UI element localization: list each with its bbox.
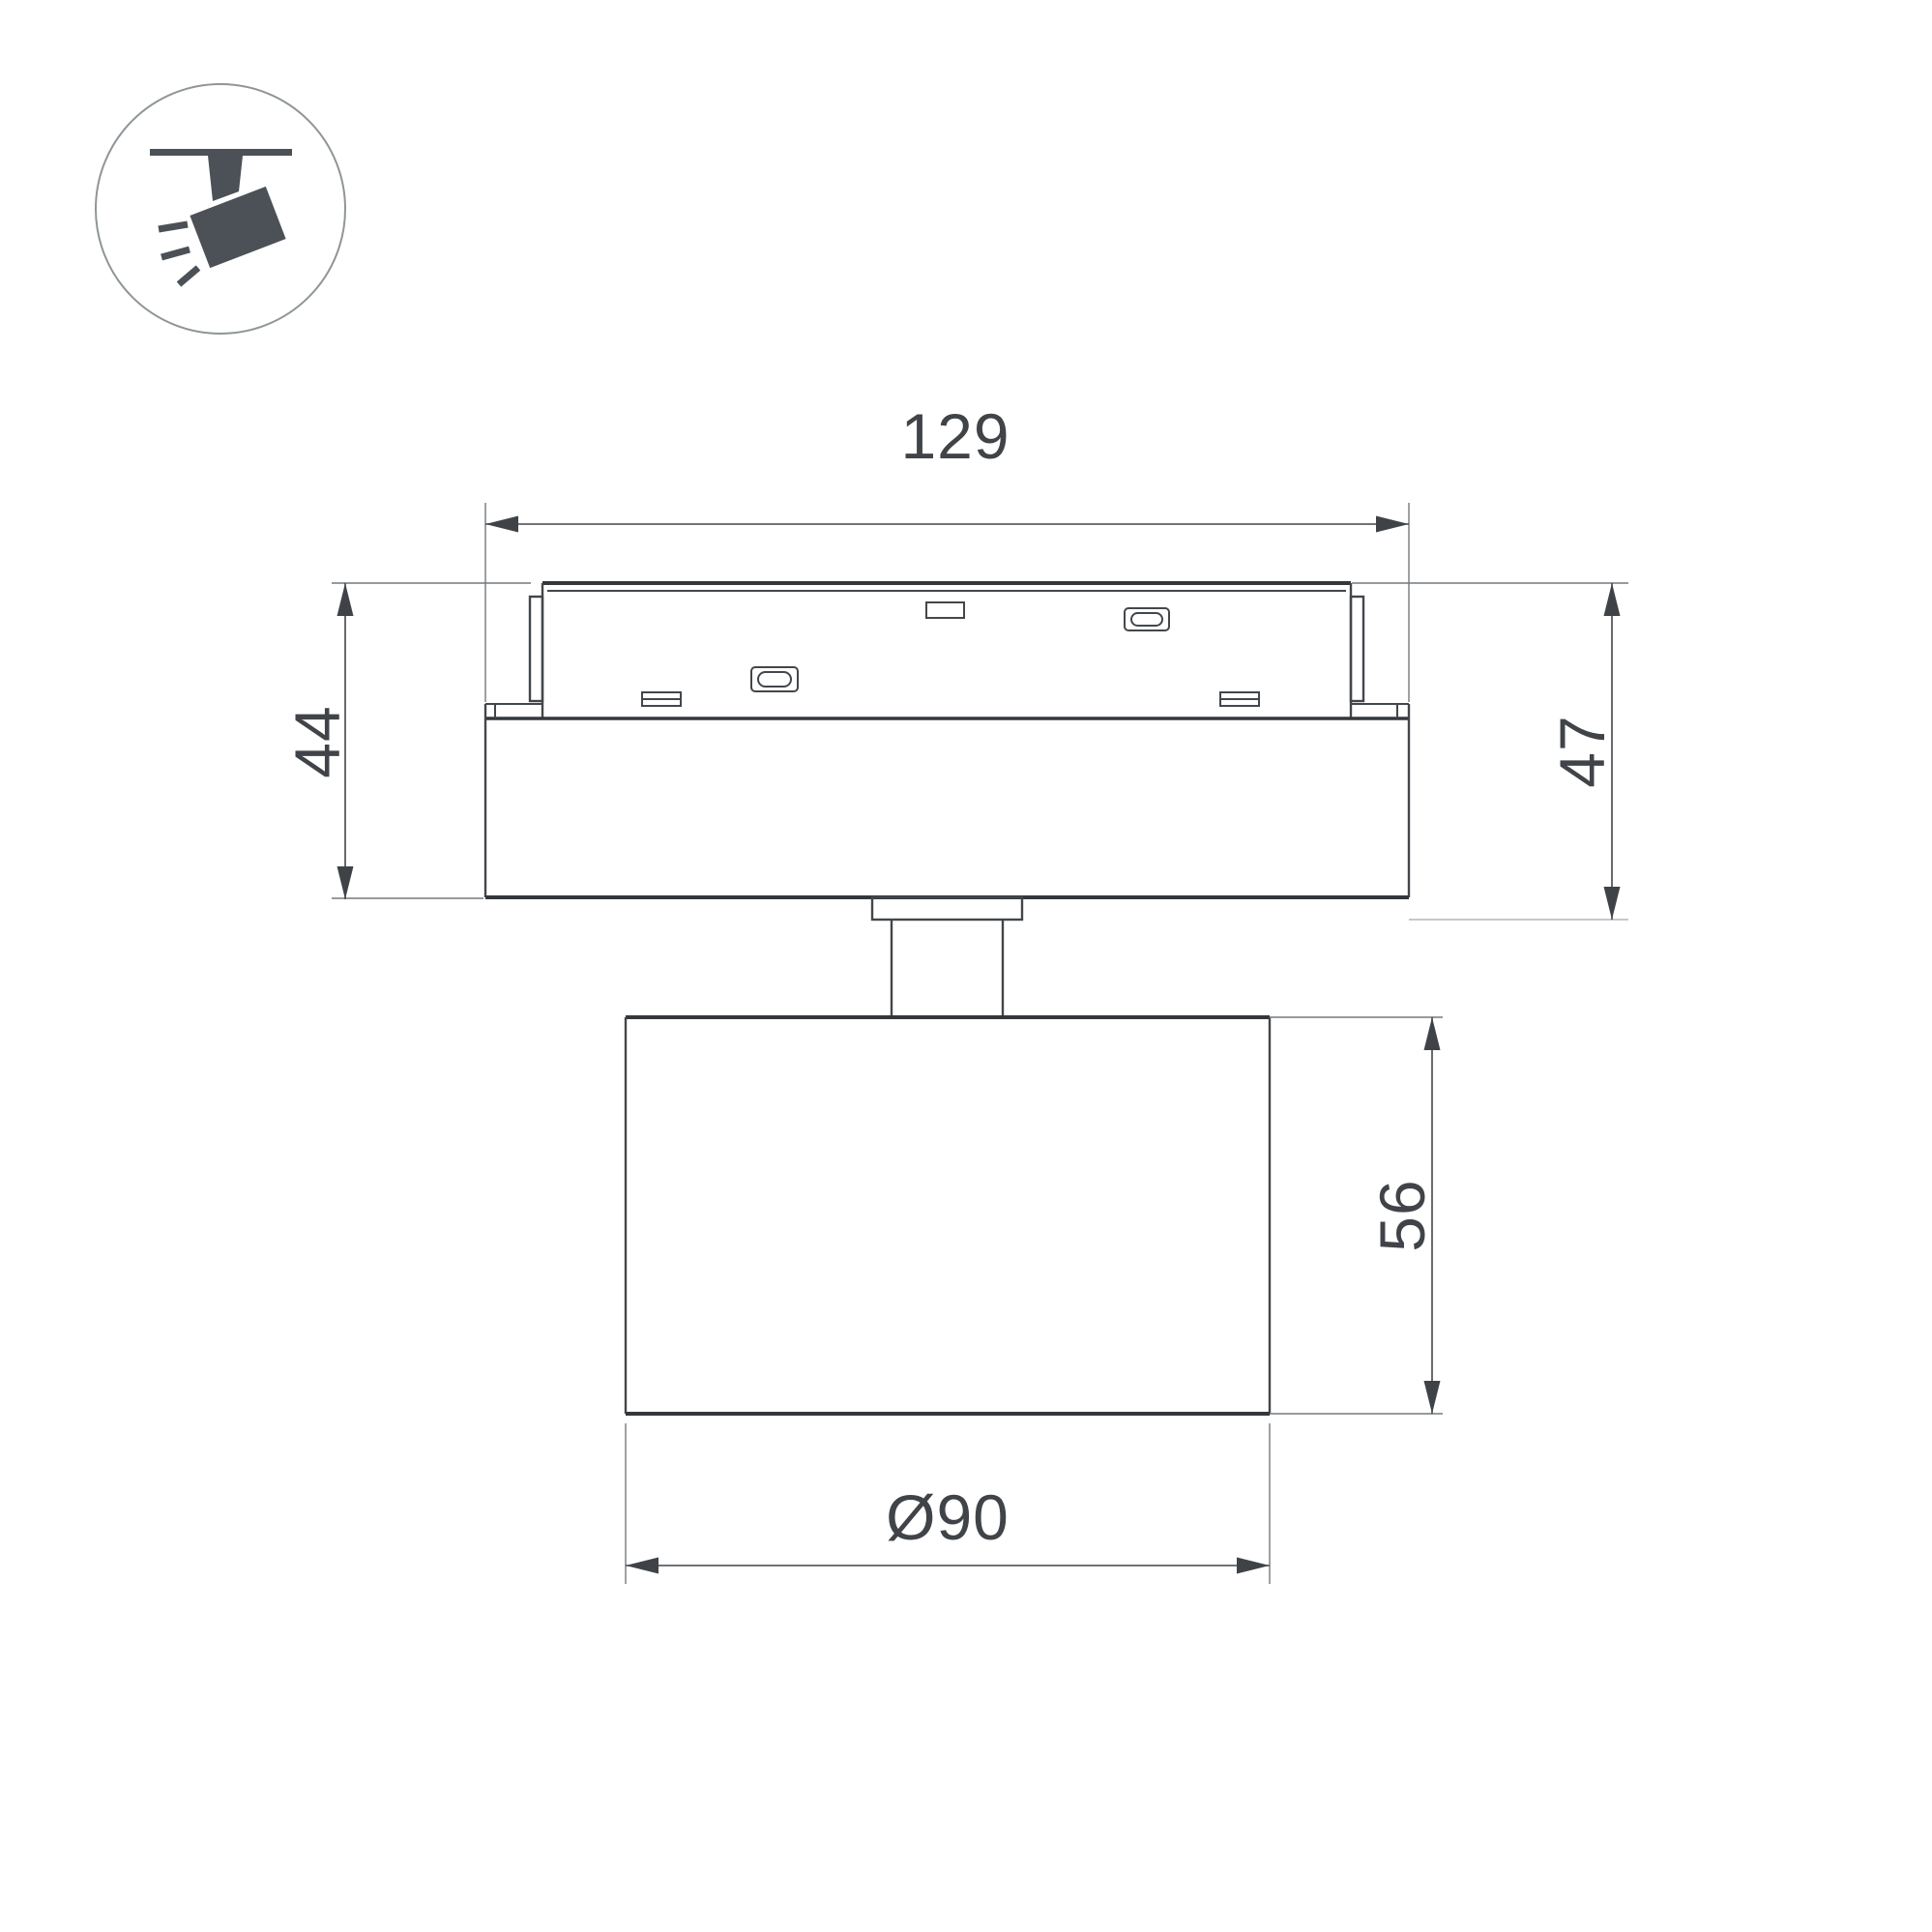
arrow-up-icon <box>337 583 354 616</box>
arrow-up-icon <box>1604 583 1621 616</box>
dim-mount-total-height-label: 47 <box>1546 715 1618 787</box>
arrow-up-icon <box>1424 1017 1441 1050</box>
pivot-flange <box>872 897 1022 920</box>
track-adapter-view <box>530 583 1363 718</box>
dim-head-diameter-label: Ø90 <box>886 1481 1010 1553</box>
arrow-down-icon <box>337 866 354 899</box>
pivot-mount-view <box>872 897 1022 1017</box>
dim-head-diameter: Ø90 <box>626 1423 1270 1584</box>
arrow-right-icon <box>1376 516 1409 533</box>
dim-head-height-label: 56 <box>1366 1179 1438 1251</box>
rect-cutout-center <box>926 602 964 618</box>
arrow-right-icon <box>1237 1558 1270 1574</box>
contact-window-right-inner <box>1131 613 1162 626</box>
dim-mount-total-height: 47 <box>1352 583 1628 920</box>
dim-head-height: 56 <box>1270 1017 1443 1414</box>
dim-base-height-label: 44 <box>281 705 353 777</box>
contact-window-left-inner <box>758 672 791 687</box>
dim-base-height: 44 <box>281 583 531 899</box>
arrow-left-icon <box>626 1558 659 1574</box>
adapter-left-clip <box>530 597 542 701</box>
dim-adapter-width: 129 <box>485 400 1409 702</box>
dim-adapter-width-label: 129 <box>900 400 1010 472</box>
spotlight-head-view <box>626 1017 1270 1414</box>
drawing-svg: 129 44 47 56 Ø90 <box>0 0 1932 1932</box>
arrow-down-icon <box>1604 887 1621 920</box>
technical-drawing-canvas: 129 44 47 56 Ø90 <box>0 0 1932 1932</box>
track-spotlight-icon <box>96 84 345 334</box>
adapter-cutouts <box>642 602 1259 706</box>
adapter-right-clip <box>1351 597 1363 701</box>
arrow-left-icon <box>485 516 518 533</box>
arrow-down-icon <box>1424 1381 1441 1414</box>
ceiling-track-bar-icon <box>150 149 292 156</box>
base-plate-view <box>485 704 1409 897</box>
